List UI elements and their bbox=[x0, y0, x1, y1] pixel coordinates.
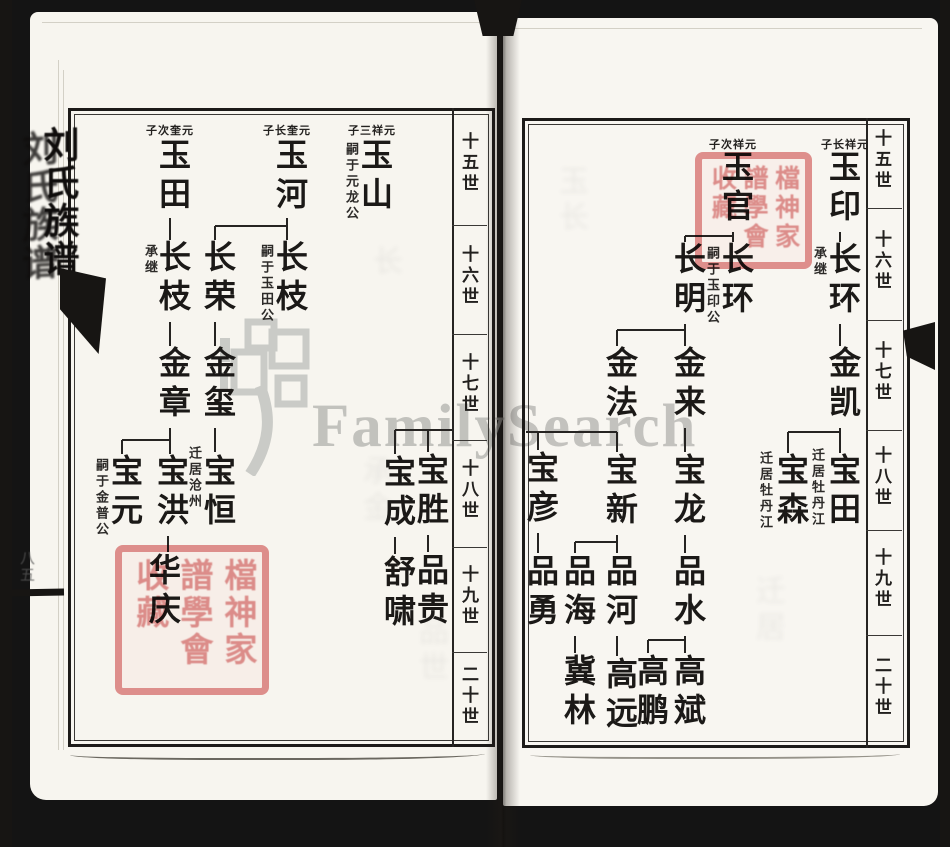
generation-label: 十五世 bbox=[873, 129, 890, 192]
spine-bottom-bar bbox=[10, 589, 64, 597]
generation-cell-divider bbox=[452, 334, 487, 335]
person-name: 金玺 bbox=[196, 346, 234, 424]
generation-label: 十八世 bbox=[873, 446, 890, 509]
tree-connector-line bbox=[574, 636, 576, 653]
tree-connector-line bbox=[395, 429, 452, 431]
tree-connector-line bbox=[214, 226, 216, 240]
seal-script-column: 收藏 bbox=[708, 165, 735, 223]
generation-cell-divider bbox=[452, 547, 487, 548]
tree-connector-line bbox=[215, 225, 287, 227]
person-name: 高远 bbox=[598, 657, 636, 735]
person-name: 金来 bbox=[666, 346, 704, 424]
tree-connector-line bbox=[121, 440, 123, 454]
tree-connector-line bbox=[684, 640, 686, 653]
tree-connector-line bbox=[684, 535, 686, 553]
generation-label: 二十世 bbox=[873, 656, 890, 719]
generation-label: 十七世 bbox=[460, 353, 477, 416]
generation-label: 十七世 bbox=[873, 341, 890, 404]
archive-seal-stamp: 檔神家譜學會收藏 bbox=[115, 545, 269, 695]
book-scan-stage: FamilySearch 十五世十六世十七世十八世十九世二十世子次奎元子长奎元子… bbox=[0, 0, 950, 847]
tree-connector-line bbox=[169, 322, 171, 346]
image-left-crop-strip bbox=[0, 0, 12, 847]
person-name: 宝胜 bbox=[409, 453, 447, 531]
tree-connector-line bbox=[839, 232, 841, 242]
tree-connector-line bbox=[574, 542, 576, 553]
page-edge-line bbox=[42, 22, 482, 23]
generation-cell-divider bbox=[866, 530, 902, 531]
person-annotation: 嗣于金普公 bbox=[92, 458, 108, 538]
tree-connector-line bbox=[122, 439, 170, 441]
tree-connector-line bbox=[537, 432, 539, 450]
person-annotation: 承继 bbox=[810, 246, 826, 278]
tree-connector-line bbox=[214, 428, 216, 452]
person-name: 宝森 bbox=[769, 453, 807, 531]
tree-connector-line bbox=[427, 535, 429, 552]
tree-connector-line bbox=[526, 431, 617, 433]
tree-connector-line bbox=[647, 640, 649, 653]
tree-connector-line bbox=[169, 440, 171, 454]
person-name: 长荣 bbox=[196, 240, 234, 318]
person-name: 品勇 bbox=[519, 554, 557, 632]
tree-connector-line bbox=[684, 330, 686, 346]
person-name: 宝彦 bbox=[519, 451, 557, 529]
tree-connector-line bbox=[617, 329, 685, 331]
person-name: 金章 bbox=[151, 346, 189, 424]
person-name: 宝田 bbox=[821, 453, 859, 531]
generation-cell-divider bbox=[452, 225, 487, 226]
seal-script-column: 收藏 bbox=[130, 558, 166, 632]
person-name: 宝龙 bbox=[666, 453, 704, 531]
person-name: 金法 bbox=[598, 346, 636, 424]
right-generation-column-border bbox=[866, 118, 868, 748]
parentage-header-label: 子长奎元 bbox=[263, 122, 311, 138]
tree-connector-line bbox=[684, 428, 686, 452]
bleed-through-ghost-text: 迁居 bbox=[745, 575, 789, 647]
tree-connector-line bbox=[214, 322, 216, 346]
tree-connector-line bbox=[616, 636, 618, 656]
tree-connector-line bbox=[286, 226, 288, 240]
spine-title: 刘氏族谱 bbox=[37, 126, 79, 278]
generation-label: 十六世 bbox=[460, 245, 477, 308]
tree-connector-line bbox=[839, 432, 841, 453]
tree-connector-line bbox=[648, 639, 685, 641]
page-edge-line bbox=[512, 28, 922, 29]
generation-label: 十五世 bbox=[460, 132, 477, 195]
person-name: 冀林 bbox=[556, 654, 594, 732]
generation-label: 十六世 bbox=[873, 230, 890, 293]
tree-connector-line bbox=[616, 330, 618, 346]
bleed-through-ghost-text: 玉长 bbox=[548, 165, 592, 237]
person-annotation: 迁居牡丹江 bbox=[756, 451, 772, 531]
person-name: 宝新 bbox=[598, 453, 636, 531]
person-name: 金凯 bbox=[821, 346, 859, 424]
tree-connector-line bbox=[616, 432, 618, 452]
bleed-through-ghost-text: 长 bbox=[362, 245, 406, 281]
parentage-header-label: 子次奎元 bbox=[146, 122, 194, 138]
person-name: 玉河 bbox=[268, 138, 306, 216]
page-bottom-curve bbox=[530, 748, 900, 759]
seal-script-column: 譜學會 bbox=[740, 165, 767, 252]
generation-label: 十八世 bbox=[460, 459, 477, 522]
tree-connector-line bbox=[394, 537, 396, 554]
tree-connector-line bbox=[394, 430, 396, 454]
bleed-through-ghost-text: 承金 bbox=[352, 455, 396, 527]
book-gutter-shadow bbox=[486, 0, 520, 847]
tree-connector-line bbox=[537, 533, 539, 553]
person-annotation: 承继 bbox=[141, 244, 157, 276]
bleed-through-ghost-text: 品世 bbox=[408, 615, 452, 687]
tree-connector-line bbox=[169, 218, 171, 240]
image-right-crop-strip bbox=[940, 0, 950, 847]
folio-page-marks: 八五 bbox=[16, 550, 37, 584]
person-annotation: 嗣于元龙公 bbox=[342, 142, 358, 222]
generation-cell-divider bbox=[866, 320, 902, 321]
generation-cell-divider bbox=[452, 652, 487, 653]
generation-cell-divider bbox=[866, 635, 902, 636]
person-annotation: 嗣于玉田公 bbox=[257, 244, 273, 324]
tree-connector-line bbox=[427, 430, 429, 452]
tree-connector-line bbox=[839, 324, 841, 346]
generation-label: 二十世 bbox=[460, 665, 477, 728]
person-name: 玉印 bbox=[821, 150, 859, 228]
parentage-header-label: 子三祥元 bbox=[348, 122, 396, 138]
person-name: 宝洪 bbox=[149, 454, 187, 532]
tree-connector-line bbox=[575, 541, 617, 543]
person-name: 品河 bbox=[598, 554, 636, 632]
seal-script-column: 檔神家 bbox=[218, 558, 254, 669]
archive-seal-stamp: 檔神家譜學會收藏 bbox=[695, 152, 812, 269]
person-name: 品海 bbox=[556, 554, 594, 632]
tree-connector-line bbox=[616, 542, 618, 553]
person-name: 高斌 bbox=[666, 654, 704, 732]
person-name: 品水 bbox=[666, 554, 704, 632]
person-annotation: 迁居牡丹江 bbox=[808, 448, 824, 528]
person-name: 玉田 bbox=[151, 138, 189, 216]
generation-cell-divider bbox=[866, 430, 902, 431]
tree-connector-line bbox=[788, 431, 840, 433]
seal-script-column: 譜學會 bbox=[174, 558, 210, 669]
generation-cell-divider bbox=[866, 208, 902, 209]
seal-script-column: 檔神家 bbox=[772, 165, 799, 252]
generation-label: 十九世 bbox=[873, 548, 890, 611]
tree-connector-line bbox=[787, 432, 789, 453]
generation-label: 十九世 bbox=[460, 565, 477, 628]
generation-cell-divider bbox=[452, 440, 487, 441]
person-annotation: 迁居沧州 bbox=[185, 446, 201, 510]
page-bottom-curve bbox=[70, 746, 485, 760]
